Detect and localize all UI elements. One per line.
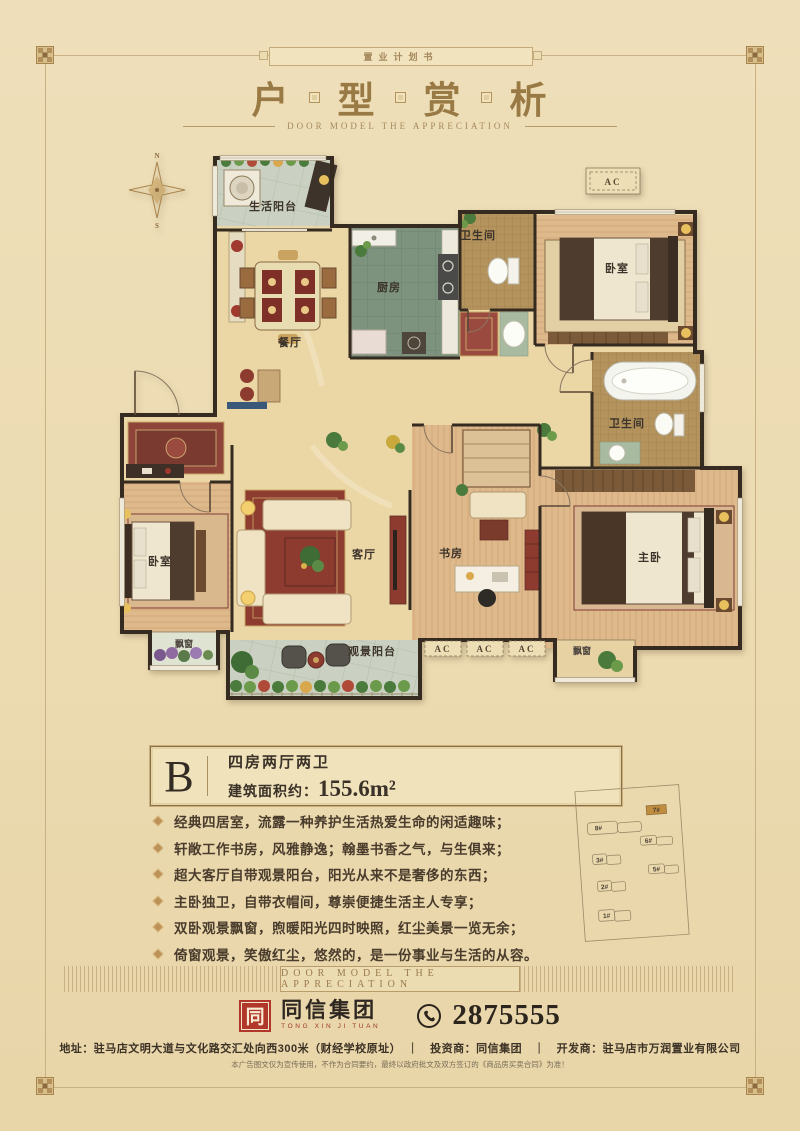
title-char: 赏 — [424, 70, 463, 124]
page-subtitle: DOOR MODEL THE APPRECIATION — [0, 121, 800, 131]
feature-text: 双卧观景飘窗，煦暖阳光四时映照，红尘美景一览无余； — [174, 917, 524, 937]
building-label: 3# — [596, 857, 604, 865]
logo-name: 同信集团 — [281, 1000, 380, 1021]
room-label-bay-left: 飘窗 — [175, 638, 193, 649]
unit-area: 建筑面积约：155.6m² — [228, 776, 396, 802]
footer-brand: 同 同信集团 TONG XIN JI TUAN 2875555 — [0, 999, 800, 1032]
feature-item: 双卧观景飘窗，煦暖阳光四时映照，红尘美景一览无余； — [152, 920, 622, 935]
band-text: DOOR MODEL THE APPRECIATION — [281, 968, 519, 990]
diamond-bullet-icon — [152, 842, 163, 853]
logo-icon: 同 — [239, 1000, 271, 1032]
logo-subtitle: TONG XIN JI TUAN — [281, 1024, 380, 1031]
subtitle-line — [525, 126, 617, 127]
unit-area-label: 建筑面积约： — [228, 783, 318, 799]
room-label-view-balcony: 观景阳台 — [348, 644, 396, 658]
building-label: 5# — [653, 866, 661, 874]
feature-text: 倚窗观景，笑傲红尘，悠然的，是一份事业与生活的从容。 — [174, 944, 538, 964]
square-ornament-icon — [395, 92, 406, 103]
subtitle-text: DOOR MODEL THE APPRECIATION — [287, 121, 513, 131]
banner-endcap-icon — [259, 51, 268, 60]
feature-item: 主卧独卫，自带衣帽间，尊崇便捷生活主人专享； — [152, 893, 622, 908]
compass-south-label: S — [155, 222, 159, 230]
feature-item: 倚窗观景，笑傲红尘，悠然的，是一份事业与生活的从容。 — [152, 946, 622, 961]
corner-ornament-icon — [36, 1077, 54, 1095]
feature-text: 经典四居室，流露一种养护生活热爱生命的闲适趣味； — [174, 811, 510, 831]
diamond-bullet-icon — [152, 815, 163, 826]
page-title: 户 型 赏 析 — [0, 70, 800, 124]
room-label-master: 主卧 — [638, 550, 662, 564]
room-label-life-balcony: 生活阳台 — [249, 199, 297, 213]
ac-label: AC — [435, 644, 452, 654]
phone-number: 2875555 — [452, 999, 561, 1032]
feature-text: 超大客厅自带观景阳台，阳光从来不是奢侈的东西； — [174, 864, 496, 884]
feature-list: 经典四居室，流露一种养护生活热爱生命的闲适趣味； 轩敞工作书房，风雅静逸；翰墨书… — [152, 802, 622, 961]
room-label-living: 客厅 — [351, 547, 376, 561]
square-ornament-icon — [481, 92, 492, 103]
ac-label: AC — [605, 177, 622, 187]
diamond-bullet-icon — [152, 868, 163, 879]
feature-text: 轩敞工作书房，风雅静逸；翰墨书香之气，与生俱来； — [174, 838, 510, 858]
feature-item: 超大客厅自带观景阳台，阳光从来不是奢侈的东西； — [152, 867, 622, 882]
floorplan: AC AC AC AC N S 生活阳台 餐厅 厨房 卫生间 卧室 卫生间 客厅… — [112, 146, 752, 711]
building-label: 2# — [601, 884, 609, 892]
ac-label: AC — [519, 644, 536, 654]
top-banner: 置业计划书 — [269, 47, 533, 66]
site-plan: 7# 8# 6# 3# 5# 2# 1# — [568, 782, 743, 962]
building-label: 6# — [645, 838, 653, 846]
corner-ornament-icon — [36, 46, 54, 64]
unit-layout: 四房两厅两卫 — [228, 751, 396, 772]
diamond-bullet-icon — [152, 895, 163, 906]
subtitle-line — [183, 126, 275, 127]
room-label-bedroom-left: 卧室 — [148, 554, 172, 568]
square-ornament-icon — [309, 92, 320, 103]
address-line: 地址：驻马店文明大道与文化路交汇处向西300米（财经学校原址） ｜ 投资商：同信… — [0, 1040, 800, 1056]
compass-north-label: N — [154, 152, 159, 160]
stripe-pattern — [520, 966, 736, 992]
diamond-bullet-icon — [152, 948, 163, 959]
compass-icon: N S — [129, 152, 185, 230]
corner-ornament-icon — [746, 1077, 764, 1095]
bottom-band: DOOR MODEL THE APPRECIATION — [64, 966, 736, 992]
corner-ornament-icon — [746, 46, 764, 64]
building-label: 7# — [653, 807, 661, 815]
banner-text: 置业计划书 — [363, 50, 438, 63]
ac-label: AC — [477, 644, 494, 654]
bedroom-top-furniture — [545, 222, 694, 344]
title-char: 型 — [338, 70, 377, 124]
feature-item: 经典四居室，流露一种养护生活热爱生命的闲适趣味； — [152, 814, 622, 829]
stripe-pattern — [64, 966, 280, 992]
building-label: 1# — [603, 913, 611, 921]
feature-text: 主卧独卫，自带衣帽间，尊崇便捷生活主人专享； — [174, 891, 482, 911]
banner-endcap-icon — [533, 51, 542, 60]
title-char: 户 — [252, 70, 291, 124]
disclaimer: 本广告图文仅为宣传使用，不作为合同要约，最终以政府批文及双方签订的《商品房买卖合… — [0, 1059, 800, 1070]
room-label-bath-top: 卫生间 — [460, 228, 496, 242]
band-box: DOOR MODEL THE APPRECIATION — [280, 966, 520, 992]
room-label-bedroom-top: 卧室 — [605, 261, 629, 275]
room-label-study: 书房 — [439, 546, 463, 560]
logo-glyph: 同 — [246, 1002, 265, 1029]
feature-item: 轩敞工作书房，风雅静逸；翰墨书香之气，与生俱来； — [152, 840, 622, 855]
room-label-bath-right: 卫生间 — [609, 416, 645, 430]
room-label-bay-right: 飘窗 — [573, 645, 591, 656]
unit-letter: B — [151, 751, 207, 802]
room-label-dining: 餐厅 — [277, 335, 302, 349]
building-label: 8# — [595, 825, 603, 833]
diamond-bullet-icon — [152, 921, 163, 932]
entry-furniture — [126, 422, 224, 478]
title-char: 析 — [510, 70, 549, 124]
unit-area-value: 155.6m² — [318, 776, 396, 801]
bedroom-left-furniture — [121, 509, 228, 613]
room-label-kitchen: 厨房 — [377, 280, 401, 294]
phone-icon — [416, 1003, 442, 1029]
unit-info-box: B 四房两厅两卫 建筑面积约：155.6m² — [150, 746, 622, 806]
